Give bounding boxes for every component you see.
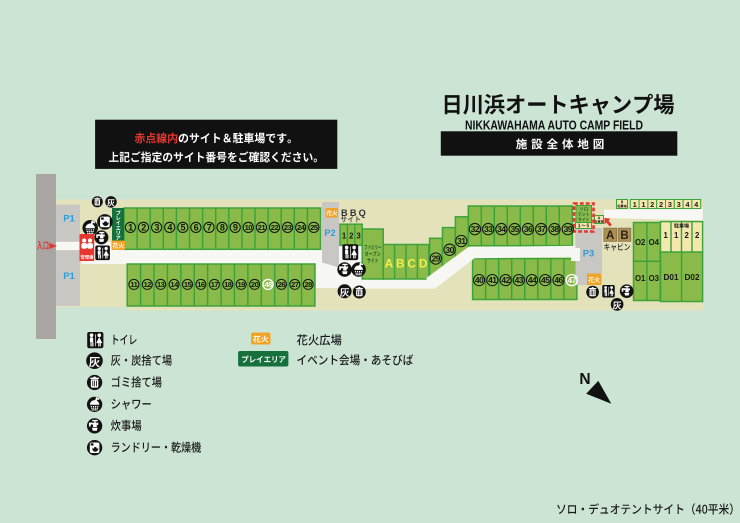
- svg-text:1: 1: [664, 231, 669, 240]
- svg-text:47: 47: [568, 275, 577, 285]
- svg-text:26: 26: [278, 280, 286, 289]
- svg-text:C: C: [407, 257, 416, 271]
- svg-text:P1: P1: [63, 270, 74, 281]
- svg-text:2: 2: [659, 200, 663, 209]
- svg-text:B: B: [396, 257, 405, 271]
- svg-text:32: 32: [471, 224, 480, 234]
- svg-text:1: 1: [633, 200, 637, 209]
- svg-text:D02: D02: [684, 273, 699, 282]
- svg-text:42: 42: [501, 275, 510, 285]
- svg-text:16: 16: [197, 280, 205, 289]
- svg-text:11: 11: [130, 280, 137, 289]
- svg-text:18: 18: [224, 280, 232, 289]
- svg-text:1: 1: [642, 200, 646, 209]
- svg-text:38: 38: [550, 224, 559, 234]
- svg-text:N: N: [579, 371, 590, 388]
- svg-text:23: 23: [284, 223, 292, 232]
- svg-text:9: 9: [233, 223, 238, 233]
- svg-text:O2: O2: [635, 238, 646, 247]
- svg-text:2: 2: [650, 200, 654, 209]
- svg-text:5: 5: [181, 223, 186, 233]
- svg-text:1: 1: [128, 223, 133, 233]
- svg-text:4: 4: [694, 200, 698, 209]
- svg-text:31: 31: [457, 236, 466, 246]
- svg-text:29: 29: [432, 254, 441, 264]
- svg-text:15: 15: [184, 280, 192, 289]
- svg-text:2: 2: [141, 223, 146, 233]
- svg-text:36: 36: [524, 224, 533, 234]
- svg-text:10: 10: [245, 223, 253, 232]
- svg-text:1: 1: [342, 231, 347, 240]
- svg-text:43: 43: [515, 275, 524, 285]
- svg-text:28: 28: [305, 280, 313, 289]
- svg-text:20: 20: [251, 280, 259, 289]
- svg-text:2: 2: [349, 231, 354, 240]
- svg-text:45: 45: [541, 275, 550, 285]
- svg-text:3: 3: [668, 200, 672, 209]
- svg-text:1: 1: [674, 231, 679, 240]
- svg-text:37: 37: [537, 224, 546, 234]
- svg-text:NIKKAWAHAMA AUTO CAMP FIELD: NIKKAWAHAMA AUTO CAMP FIELD: [465, 118, 643, 133]
- svg-text:A: A: [606, 230, 614, 242]
- svg-text:B: B: [620, 230, 628, 242]
- svg-text:40: 40: [475, 275, 484, 285]
- svg-text:4: 4: [686, 200, 690, 209]
- svg-text:D: D: [419, 257, 428, 271]
- svg-text:21: 21: [258, 223, 267, 232]
- svg-text:48: 48: [264, 280, 272, 289]
- svg-text:D01: D01: [663, 273, 678, 282]
- svg-text:46: 46: [554, 275, 563, 285]
- svg-text:3: 3: [154, 223, 159, 233]
- svg-text:2: 2: [695, 231, 700, 240]
- svg-text:41: 41: [488, 275, 497, 285]
- svg-text:30: 30: [445, 245, 454, 255]
- svg-text:34: 34: [497, 224, 506, 234]
- svg-text:8: 8: [220, 223, 225, 233]
- svg-text:33: 33: [484, 224, 493, 234]
- svg-text:27: 27: [291, 280, 299, 289]
- svg-text:22: 22: [271, 223, 279, 232]
- svg-text:O4: O4: [649, 238, 660, 247]
- svg-text:3: 3: [356, 231, 361, 240]
- svg-text:O1: O1: [635, 274, 646, 283]
- svg-text:39: 39: [564, 224, 573, 234]
- svg-text:24: 24: [297, 223, 306, 232]
- svg-text:17: 17: [211, 280, 219, 289]
- svg-text:P1: P1: [63, 213, 74, 224]
- svg-text:19: 19: [238, 280, 246, 289]
- svg-text:44: 44: [528, 275, 537, 285]
- svg-text:O3: O3: [649, 274, 660, 283]
- svg-text:35: 35: [510, 224, 519, 234]
- svg-text:25: 25: [310, 223, 319, 232]
- svg-text:P3: P3: [583, 248, 594, 259]
- svg-text:13: 13: [157, 280, 165, 289]
- svg-text:7: 7: [207, 223, 212, 233]
- svg-text:2: 2: [685, 231, 690, 240]
- svg-text:A: A: [385, 257, 394, 271]
- svg-text:3: 3: [677, 200, 681, 209]
- svg-text:12: 12: [144, 280, 152, 289]
- svg-text:P2: P2: [324, 228, 335, 238]
- svg-text:6: 6: [194, 223, 199, 233]
